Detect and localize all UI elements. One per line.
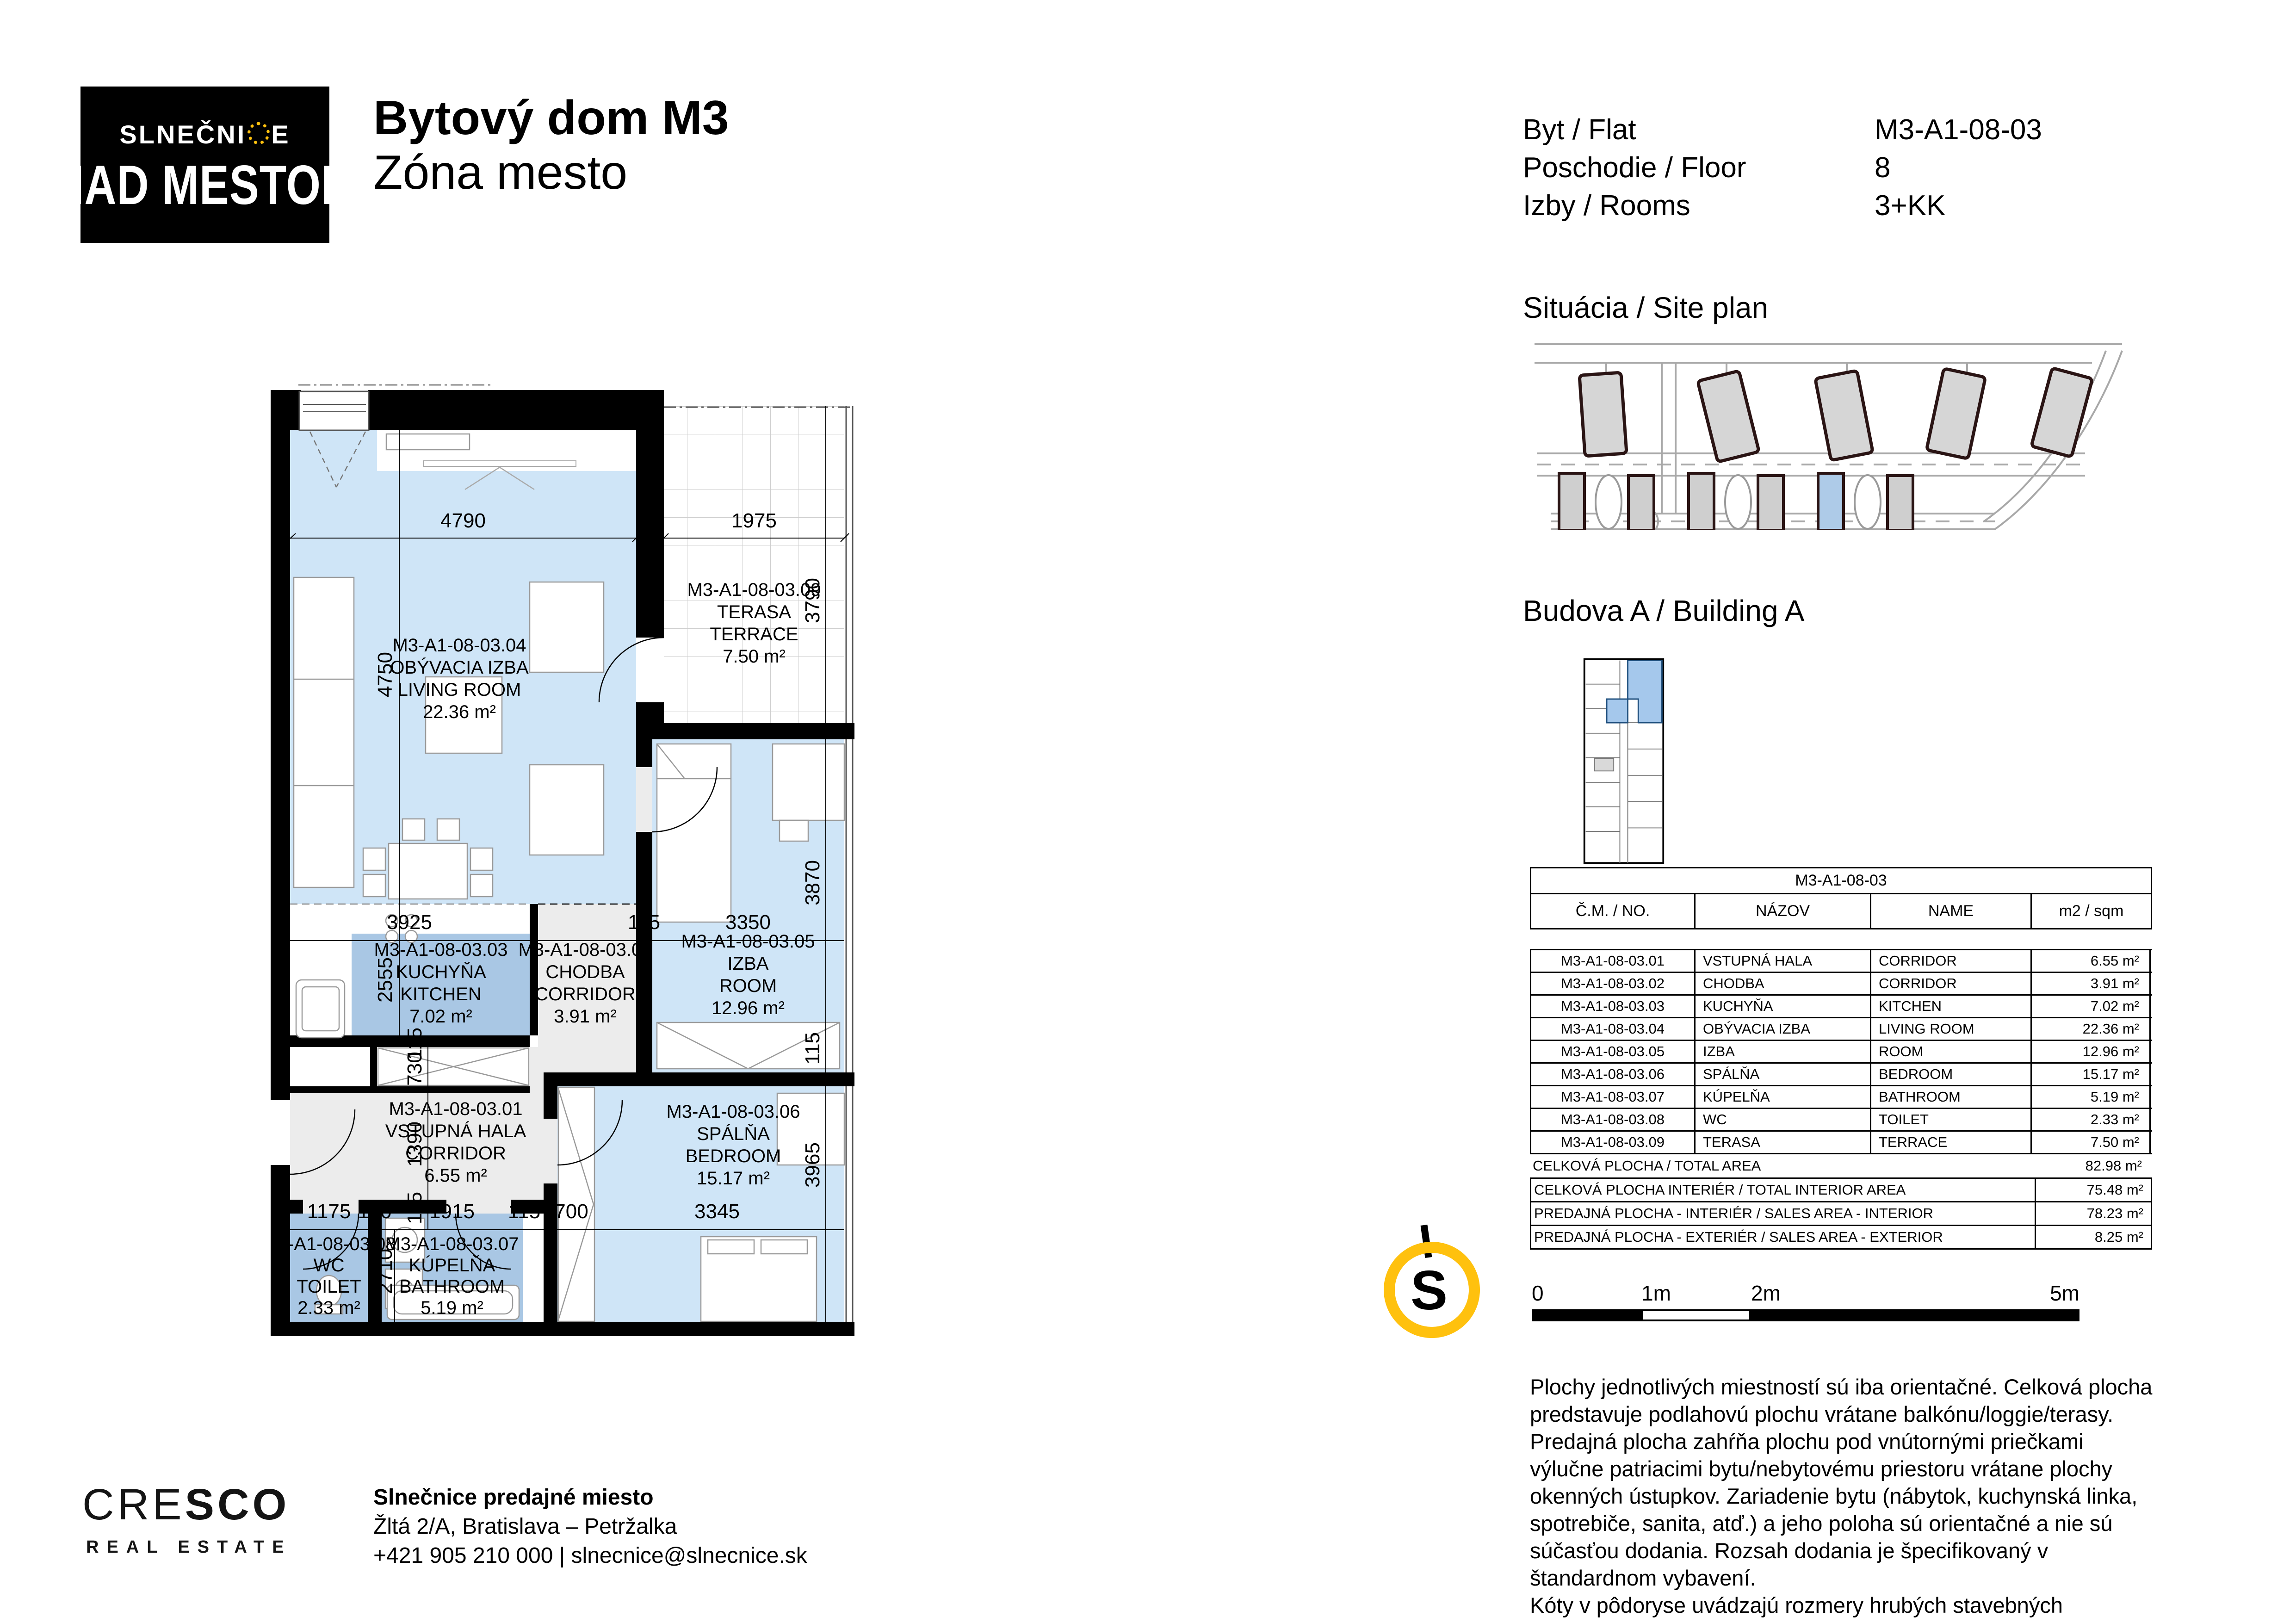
flat-info: Byt / FlatM3-A1-08-03 Poschodie / Floor8… xyxy=(1523,111,2152,225)
svg-text:KITCHEN: KITCHEN xyxy=(400,984,482,1004)
table-row: M3-A1-08-03.06SPÁLŇABEDROOM15.17 m² xyxy=(1530,1064,2152,1086)
dim-label: 115 xyxy=(508,1200,540,1223)
area-table: M3-A1-08-03 Č.M. / NO. NÁZOV NAME m2 / s… xyxy=(1530,867,2152,1250)
building-heading: Budova A / Building A xyxy=(1523,594,1804,628)
table-cell: SPÁLŇA xyxy=(1696,1064,1871,1085)
svg-text:OBÝVACIA IZBA: OBÝVACIA IZBA xyxy=(390,657,529,678)
dim-label: 3965 xyxy=(801,1142,824,1188)
svg-text:IZBA: IZBA xyxy=(728,954,769,974)
site-highlighted-building xyxy=(1818,473,1844,530)
svg-text:TERRACE: TERRACE xyxy=(710,624,798,644)
dim-label: 1175 xyxy=(307,1200,351,1223)
table-cell: M3-A1-08-03.09 xyxy=(1531,1132,1696,1153)
brand-name: SLNEČNIE xyxy=(119,119,290,149)
contact-phone-email: +421 905 210 000 | slnecnice@slnecnice.s… xyxy=(373,1541,807,1570)
document-title: Bytový dom M3 Zóna mesto xyxy=(373,91,729,200)
dim-label: 4790 xyxy=(440,509,486,532)
svg-text:CORRIDOR: CORRIDOR xyxy=(535,984,636,1004)
site-plan xyxy=(1523,337,2129,530)
page-subtitle: Zóna mesto xyxy=(373,145,729,200)
svg-text:6.55 m²: 6.55 m² xyxy=(424,1165,487,1186)
total-area-row: CELKOVÁ PLOCHA / TOTAL AREA 82.98 m² xyxy=(1530,1154,2152,1177)
cresco-subtitle: REAL ESTATE xyxy=(82,1537,292,1557)
col-header-nazov: NÁZOV xyxy=(1696,894,1871,928)
scale-bar-segments xyxy=(1532,1309,2079,1321)
table-cell: CHODBA xyxy=(1696,973,1871,994)
svg-text:TERASA: TERASA xyxy=(717,602,791,622)
dim-label: 115 xyxy=(628,911,660,934)
table-cell: 12.96 m² xyxy=(2032,1041,2151,1062)
table-cell: CORRIDOR xyxy=(1871,950,2032,972)
table-cell: M3-A1-08-03.06 xyxy=(1531,1064,1696,1085)
svg-text:M3-A1-08-03.02: M3-A1-08-03.02 xyxy=(518,940,652,960)
dim-label: 115 xyxy=(403,1192,426,1224)
contact-address: Žltá 2/A, Bratislava – Petržalka xyxy=(373,1512,807,1541)
svg-text:ROOM: ROOM xyxy=(719,976,777,996)
scale-label-1m: 1m xyxy=(1641,1281,1671,1306)
table-row: M3-A1-08-03.07KÚPELŇABATHROOM5.19 m² xyxy=(1530,1086,2152,1109)
table-cell: M3-A1-08-03.03 xyxy=(1531,996,1696,1017)
svg-text:LIVING ROOM: LIVING ROOM xyxy=(398,680,521,700)
col-header-no: Č.M. / NO. xyxy=(1531,894,1696,928)
dim-label: 2555 xyxy=(374,957,396,1003)
svg-text:M3-A1-08-03.04: M3-A1-08-03.04 xyxy=(392,635,526,656)
table-cell: 5.19 m² xyxy=(2032,1086,2151,1108)
rooms-value: 3+KK xyxy=(1875,187,2152,225)
svg-text:KÚPELŇA: KÚPELŇA xyxy=(409,1255,495,1276)
table-row: M3-A1-08-03.05IZBAROOM12.96 m² xyxy=(1530,1041,2152,1064)
table-row: M3-A1-08-03.08WCTOILET2.33 m² xyxy=(1530,1109,2152,1132)
table-body: M3-A1-08-03.01VSTUPNÁ HALACORRIDOR6.55 m… xyxy=(1530,949,2152,1154)
table-cell: 7.50 m² xyxy=(2032,1132,2151,1153)
dim-label: 3870 xyxy=(801,860,824,905)
col-header-sqm: m2 / sqm xyxy=(2032,894,2151,928)
row-value: 8.25 m² xyxy=(2035,1226,2154,1248)
svg-text:M3-A1-08-03.01: M3-A1-08-03.01 xyxy=(389,1099,522,1119)
compass: S xyxy=(1376,1220,1487,1341)
dim-label: 700 xyxy=(554,1200,588,1223)
svg-text:M3-A1-08-03.03: M3-A1-08-03.03 xyxy=(374,940,507,960)
scale-label-2m: 2m xyxy=(1751,1281,1781,1306)
table-cell: TOILET xyxy=(1871,1109,2032,1130)
cresco-logo: CRESCO REAL ESTATE xyxy=(82,1480,292,1557)
contact-block: Slnečnice predajné miesto Žltá 2/A, Brat… xyxy=(373,1483,807,1570)
table-cell: 6.55 m² xyxy=(2032,950,2151,972)
table-cell: M3-A1-08-03.05 xyxy=(1531,1041,1696,1062)
scale-label-0: 0 xyxy=(1532,1281,1544,1306)
table-cell: M3-A1-08-03.01 xyxy=(1531,950,1696,972)
svg-text:15.17 m²: 15.17 m² xyxy=(697,1168,770,1189)
col-header-name: NAME xyxy=(1871,894,2032,928)
scale-bar: 0 1m 2m 5m xyxy=(1532,1281,2079,1327)
table-row: M3-A1-08-03.04OBÝVACIA IZBALIVING ROOM22… xyxy=(1530,1018,2152,1041)
table-cell: ROOM xyxy=(1871,1041,2032,1062)
dim-label: 140 xyxy=(358,1200,391,1223)
table-cell: M3-A1-08-03.04 xyxy=(1531,1018,1696,1040)
svg-text:7.50 m²: 7.50 m² xyxy=(723,646,786,667)
site-buildings-lower xyxy=(1559,473,1913,530)
dim-label: 730 xyxy=(403,1052,426,1085)
scale-label-5m: 5m xyxy=(2050,1281,2079,1306)
row-value: 78.23 m² xyxy=(2035,1202,2154,1225)
table-cell: 7.02 m² xyxy=(2032,996,2151,1017)
svg-text:M3-A1-08-03.08: M3-A1-08-03.08 xyxy=(271,1234,396,1254)
floor-label: Poschodie / Floor xyxy=(1523,149,1875,187)
table-title: M3-A1-08-03 xyxy=(1530,867,2152,893)
svg-text:5.19 m²: 5.19 m² xyxy=(421,1298,483,1318)
cresco-bold: SCO xyxy=(185,1480,290,1529)
dim-label: 1975 xyxy=(731,509,777,532)
dim-label: 3350 xyxy=(725,911,771,934)
table-row: M3-A1-08-03.03KUCHYŇAKITCHEN7.02 m² xyxy=(1530,996,2152,1018)
flat-value: M3-A1-08-03 xyxy=(1875,111,2152,149)
total-label: CELKOVÁ PLOCHA / TOTAL AREA xyxy=(1530,1158,2033,1174)
dim-label: 1915 xyxy=(429,1200,475,1223)
page-title: Bytový dom M3 xyxy=(373,91,729,145)
row-label: CELKOVÁ PLOCHA INTERIÉR / TOTAL INTERIOR… xyxy=(1531,1182,2035,1198)
brand-name-line2: NAD MESTOM xyxy=(52,154,358,217)
sales-interior-row: PREDAJNÁ PLOCHA - INTERIÉR / SALES AREA … xyxy=(1530,1202,2152,1226)
rooms-label: Izby / Rooms xyxy=(1523,187,1875,225)
dim-label: 115 xyxy=(801,1032,824,1065)
table-cell: BEDROOM xyxy=(1871,1064,2032,1085)
brochure-page: SLNEČNIE NAD MESTOM Bytový dom M3 Zóna m… xyxy=(0,0,2296,1623)
svg-text:KUCHYŇA: KUCHYŇA xyxy=(396,961,486,982)
table-cell: M3-A1-08-03.08 xyxy=(1531,1109,1696,1130)
site-buildings-upper xyxy=(1579,368,2092,462)
svg-text:M3-A1-08-03.09: M3-A1-08-03.09 xyxy=(687,580,821,600)
dim-label: 2710 xyxy=(374,1249,396,1294)
svg-text:12.96 m²: 12.96 m² xyxy=(712,998,785,1018)
table-cell: 2.33 m² xyxy=(2032,1109,2151,1130)
floor-plan: 4790 1975 4750 3790 3925 115 3350 2555 3… xyxy=(271,378,867,1345)
table-cell: WC xyxy=(1696,1109,1871,1130)
svg-text:VSTUPNÁ HALA: VSTUPNÁ HALA xyxy=(385,1121,526,1141)
disclaimer-paragraph: Predajná plocha zahŕňa plochu pod vnútor… xyxy=(1530,1428,2161,1592)
table-cell: 3.91 m² xyxy=(2032,973,2151,994)
total-value: 82.98 m² xyxy=(2033,1158,2152,1174)
building-key-plan xyxy=(1580,657,1668,865)
disclaimer: Plochy jednotlivých miestností sú iba or… xyxy=(1530,1373,2161,1623)
svg-text:CORRIDOR: CORRIDOR xyxy=(405,1143,506,1164)
floor-value: 8 xyxy=(1875,149,2152,187)
sales-exterior-row: PREDAJNÁ PLOCHA - EXTERIÉR / SALES AREA … xyxy=(1530,1226,2152,1250)
disclaimer-paragraph: Plochy jednotlivých miestností sú iba or… xyxy=(1530,1373,2161,1428)
table-cell: 22.36 m² xyxy=(2032,1018,2151,1040)
table-cell: BATHROOM xyxy=(1871,1086,2032,1108)
table-row: M3-A1-08-03.01VSTUPNÁ HALACORRIDOR6.55 m… xyxy=(1530,950,2152,973)
interior-area-row: CELKOVÁ PLOCHA INTERIÉR / TOTAL INTERIOR… xyxy=(1530,1177,2152,1202)
table-cell: OBÝVACIA IZBA xyxy=(1696,1018,1871,1040)
contact-office: Slnečnice predajné miesto xyxy=(373,1483,807,1512)
dim-label: 3925 xyxy=(387,911,432,934)
table-cell: LIVING ROOM xyxy=(1871,1018,2032,1040)
table-cell: KITCHEN xyxy=(1871,996,2032,1017)
row-label: PREDAJNÁ PLOCHA - EXTERIÉR / SALES AREA … xyxy=(1531,1229,2035,1245)
svg-text:WC: WC xyxy=(314,1255,345,1276)
site-plan-heading: Situácia / Site plan xyxy=(1523,291,1768,325)
table-cell: TERRACE xyxy=(1871,1132,2032,1153)
table-cell: CORRIDOR xyxy=(1871,973,2032,994)
svg-text:SPÁLŇA: SPÁLŇA xyxy=(697,1123,770,1144)
highlighted-flat-annex xyxy=(1607,699,1628,723)
svg-text:TOILET: TOILET xyxy=(297,1276,361,1297)
row-label: PREDAJNÁ PLOCHA - INTERIÉR / SALES AREA … xyxy=(1531,1205,2035,1222)
flat-label: Byt / Flat xyxy=(1523,111,1875,149)
svg-text:7.02 m²: 7.02 m² xyxy=(409,1006,472,1027)
table-cell: VSTUPNÁ HALA xyxy=(1696,950,1871,972)
row-value: 75.48 m² xyxy=(2035,1179,2154,1201)
table-cell: M3-A1-08-03.07 xyxy=(1531,1086,1696,1108)
svg-text:2.33 m²: 2.33 m² xyxy=(297,1298,360,1318)
svg-text:M3-A1-08-03.05: M3-A1-08-03.05 xyxy=(681,931,815,952)
table-cell: IZBA xyxy=(1696,1041,1871,1062)
disclaimer-paragraph: Kóty v pôdoryse uvádzajú rozmery hrubých… xyxy=(1530,1592,2161,1623)
table-row: M3-A1-08-03.09TERASATERRACE7.50 m² xyxy=(1530,1132,2152,1154)
svg-text:BEDROOM: BEDROOM xyxy=(686,1146,781,1166)
brand-logo: SLNEČNIE NAD MESTOM xyxy=(80,87,329,243)
table-cell: M3-A1-08-03.02 xyxy=(1531,973,1696,994)
svg-text:BATHROOM: BATHROOM xyxy=(399,1276,505,1297)
compass-letter: S xyxy=(1411,1259,1448,1321)
svg-text:M3-A1-08-03.06: M3-A1-08-03.06 xyxy=(666,1102,800,1122)
table-header: Č.M. / NO. NÁZOV NAME m2 / sqm xyxy=(1530,893,2152,929)
table-cell: KUCHYŇA xyxy=(1696,996,1871,1017)
table-cell: 15.17 m² xyxy=(2032,1064,2151,1085)
table-cell: TERASA xyxy=(1696,1132,1871,1153)
svg-text:3.91 m²: 3.91 m² xyxy=(554,1006,617,1027)
svg-text:M3-A1-08-03.07: M3-A1-08-03.07 xyxy=(385,1234,519,1254)
svg-text:22.36 m²: 22.36 m² xyxy=(423,702,496,722)
dim-label: 3345 xyxy=(694,1200,740,1223)
cresco-thin: CRE xyxy=(82,1480,185,1529)
sun-icon xyxy=(248,122,270,144)
svg-text:CHODBA: CHODBA xyxy=(545,962,625,982)
table-cell: KÚPELŇA xyxy=(1696,1086,1871,1108)
table-row: M3-A1-08-03.02CHODBACORRIDOR3.91 m² xyxy=(1530,973,2152,996)
